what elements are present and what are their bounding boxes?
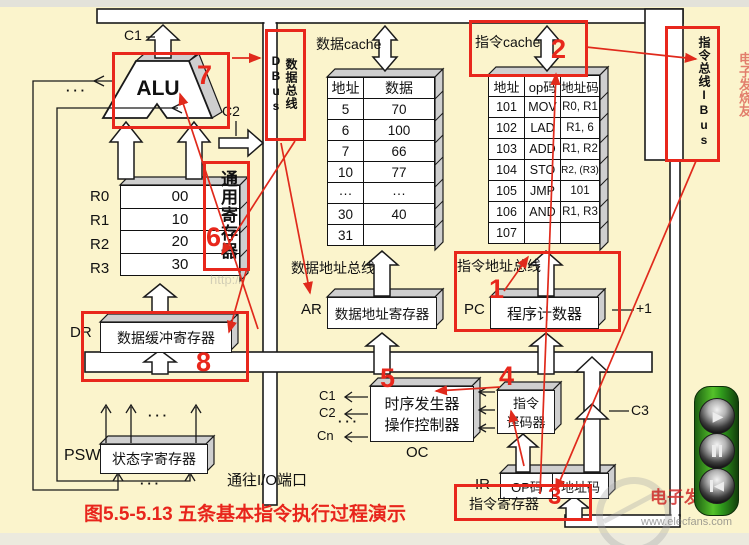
dr-label: DR <box>70 325 92 342</box>
play-button[interactable]: ▶ <box>699 398 735 434</box>
cell: 7 <box>328 141 364 162</box>
skip-back-button[interactable]: ◀ <box>699 468 735 504</box>
pc-label: PC <box>464 302 485 319</box>
instr-cache-table: 地址op码地址码 101MOVR0, R1 102LADR1, 6 103ADD… <box>488 75 600 244</box>
cell: 101 <box>489 97 525 118</box>
c1-label: C1 <box>124 28 142 43</box>
cell: 66 <box>364 141 435 162</box>
cell <box>561 223 600 244</box>
cell: ··· <box>328 183 364 204</box>
cell: R2, (R3) <box>561 160 600 181</box>
step-number-7: 7 <box>197 60 212 91</box>
cell: 103 <box>489 139 525 160</box>
step-number-1: 1 <box>489 274 504 305</box>
program-counter: 程序计数器 <box>490 297 599 329</box>
cell: R1, R3 <box>561 202 600 223</box>
data-bus-label: 数据总线DBus <box>267 34 300 134</box>
ar-label: AR <box>301 302 322 319</box>
step-number-2: 2 <box>551 34 566 65</box>
cell: 107 <box>489 223 525 244</box>
cell: 101 <box>561 181 600 202</box>
oc-label: OC <box>406 445 429 462</box>
data-addr-register: 数据地址寄存器 <box>327 297 437 329</box>
cell: 77 <box>364 162 435 183</box>
controller-line2: 操作控制器 <box>384 414 459 435</box>
cell: 5 <box>328 99 364 120</box>
cell: 30 <box>328 204 364 225</box>
col-header: 数据 <box>364 78 435 99</box>
cell: 102 <box>489 118 525 139</box>
cell: ADD <box>525 139 561 160</box>
col-header: 地址 <box>328 78 364 99</box>
ctrl-cn-label: Cn <box>317 429 334 443</box>
cell: 104 <box>489 160 525 181</box>
instr-bus-label: 指令总线IBus <box>669 31 713 153</box>
cell: MOV <box>525 97 561 118</box>
status-word-register: 状态字寄存器 <box>100 444 208 474</box>
step-number-3: 3 <box>548 483 561 511</box>
decoder-line1: 指令 <box>513 393 539 412</box>
psw-label: PSW <box>64 447 100 465</box>
cell: 100 <box>364 120 435 141</box>
pause-button[interactable] <box>699 433 735 469</box>
ctrl-c1-label: C1 <box>319 389 336 403</box>
c3-label: C3 <box>631 403 649 418</box>
c2-label: C2 <box>222 104 240 119</box>
data-buffer-register: 数据缓冲寄存器 <box>100 322 232 353</box>
step-number-5: 5 <box>380 363 395 394</box>
cell: 6 <box>328 120 364 141</box>
cell <box>525 223 561 244</box>
figure-caption: 图5.5-5.13 五条基本指令执行过程演示 <box>84 505 406 526</box>
ctrl-c2-label: C2 <box>319 406 336 420</box>
instr-register-label: 指令寄存器 <box>469 497 539 512</box>
cell: 10 <box>328 162 364 183</box>
reg-name-r0: R0 <box>90 189 109 206</box>
cell: R1, 6 <box>561 118 600 139</box>
cell: R0, R1 <box>561 97 600 118</box>
instr-decoder: 指令 译码器 <box>497 390 555 434</box>
cell: 40 <box>364 204 435 225</box>
instr-addr-bus-label: 指令地址总线 <box>457 259 541 274</box>
cell: AND <box>525 202 561 223</box>
step-number-8: 8 <box>196 347 211 378</box>
step-number-4: 4 <box>499 361 514 392</box>
alu-label: ALU <box>127 77 189 100</box>
col-header: op码 <box>525 76 561 97</box>
player-control-bar: ▶ ◀ <box>694 386 739 516</box>
ir-label: IR <box>475 477 490 494</box>
cell: 105 <box>489 181 525 202</box>
plus1-label: +1 <box>636 301 652 316</box>
pause-icon <box>712 445 716 457</box>
cell: 106 <box>489 202 525 223</box>
instr-cache-label: 指令cache <box>475 35 540 50</box>
reg-name-r3: R3 <box>90 261 109 278</box>
data-cache-label: 数据cache <box>316 37 381 52</box>
decoder-line2: 译码器 <box>506 412 545 431</box>
cell: STO <box>525 160 561 181</box>
cell: R1, R2 <box>561 139 600 160</box>
ctrl-dots: ··· <box>338 414 360 429</box>
cell: JMP <box>525 181 561 202</box>
psw-top-dots: ··· <box>148 408 170 423</box>
courseware-screen: C1 ALU C2 数据总线DBus 指令总线IBus 通用寄存器 数据cach… <box>0 0 749 545</box>
col-header: 地址码 <box>561 76 600 97</box>
play-icon: ▶ <box>713 408 724 425</box>
cell: LAD <box>525 118 561 139</box>
step-number-6: 6 <box>206 222 221 253</box>
io-port-label: 通往I/O端口 <box>227 473 307 490</box>
reg-name-r2: R2 <box>90 237 109 254</box>
cell <box>364 225 435 246</box>
timing-operation-controller: 时序发生器 操作控制器 <box>370 386 474 442</box>
cell: ··· <box>364 183 435 204</box>
alu-left-dots: ··· <box>66 83 88 98</box>
skip-back-icon: ◀ <box>714 478 724 494</box>
psw-bottom-dots: ··· <box>140 476 162 491</box>
controller-line1: 时序发生器 <box>384 393 459 414</box>
cell: 70 <box>364 99 435 120</box>
cell: 31 <box>328 225 364 246</box>
data-cache-table: 地址数据 570 6100 766 1077 ······ 3040 31 <box>327 77 435 246</box>
data-addr-bus-label: 数据地址总线 <box>291 261 375 276</box>
reg-name-r1: R1 <box>90 213 109 230</box>
col-header: 地址 <box>489 76 525 97</box>
